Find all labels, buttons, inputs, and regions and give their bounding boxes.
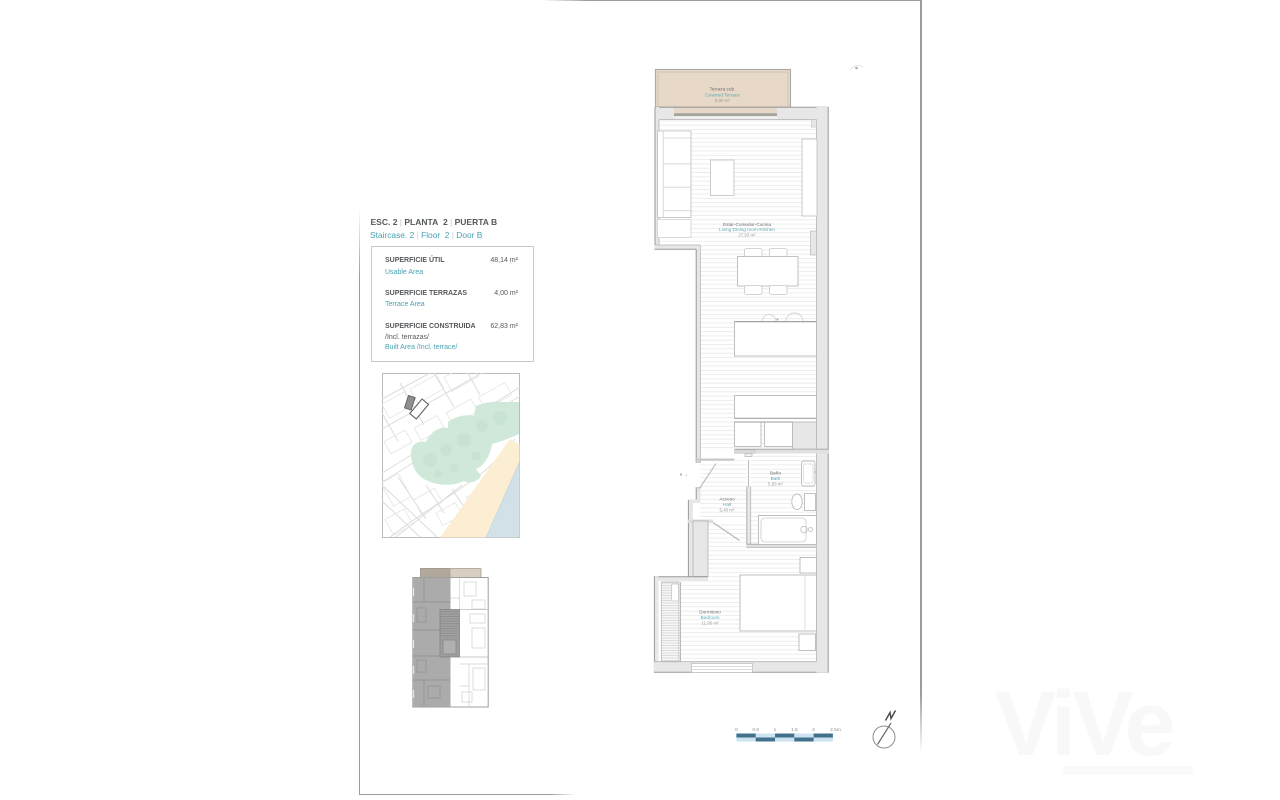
- svg-text:Bath: Bath: [771, 476, 781, 481]
- svg-text:Estar-Comedor-Cocina: Estar-Comedor-Cocina: [723, 222, 771, 227]
- svg-text:0.5: 0.5: [752, 727, 759, 733]
- svg-text:Living Dining room-Kitchen: Living Dining room-Kitchen: [719, 227, 775, 232]
- svg-text:5,83 m²: 5,83 m²: [768, 482, 783, 487]
- svg-text:5,40 m²: 5,40 m²: [720, 508, 735, 513]
- svg-text:1: 1: [774, 727, 777, 733]
- svg-text:2: 2: [812, 727, 815, 733]
- svg-text:Hall: Hall: [723, 502, 731, 507]
- svg-text:0: 0: [735, 727, 738, 733]
- svg-text:Baño: Baño: [770, 471, 781, 476]
- svg-text:11,95 m²: 11,95 m²: [701, 621, 719, 626]
- svg-text:Covered Terrace: Covered Terrace: [705, 93, 740, 98]
- svg-text:Terraza cub.: Terraza cub.: [710, 87, 736, 92]
- svg-text:8,00 m²: 8,00 m²: [715, 98, 730, 103]
- svg-text:Bedroom: Bedroom: [700, 615, 719, 620]
- svg-text:Dormitorio: Dormitorio: [699, 610, 721, 615]
- svg-text:Acceso: Acceso: [719, 497, 735, 502]
- svg-text:27,93 m²: 27,93 m²: [738, 233, 756, 238]
- svg-text:2.5m: 2.5m: [830, 727, 841, 733]
- svg-text:1.5: 1.5: [791, 727, 798, 733]
